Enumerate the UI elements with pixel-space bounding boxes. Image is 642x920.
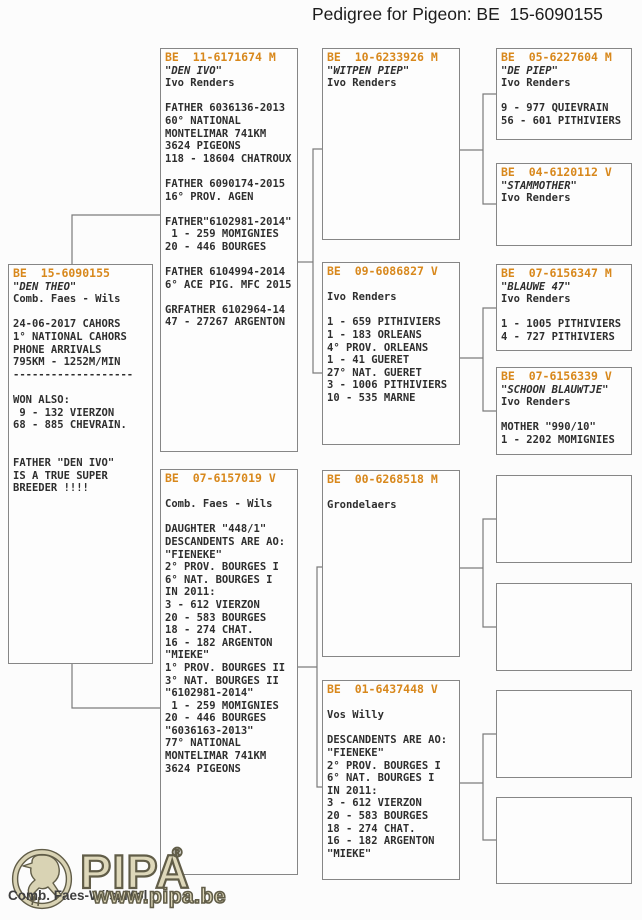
pedigree-box-granddam-paternal: BE 09-6086827 V Ivo Renders 1 - 659 PITH…	[322, 262, 460, 445]
ring-number: BE 00-6268518 M	[327, 473, 455, 486]
pedigree-box-dam: BE 07-6157019 V Comb. Faes - Wils DAUGHT…	[160, 469, 298, 875]
pigeon-details: Ivo Renders 9 - 977 QUIEVRAIN 56 - 601 P…	[501, 77, 627, 127]
pedigree-box-grandsire-maternal: BE 00-6268518 M Grondelaers	[322, 470, 460, 657]
pedigree-page: Pedigree for Pigeon: BE 15-6090155 BE 15…	[0, 0, 642, 920]
ring-number: BE 07-6157019 V	[165, 472, 293, 485]
pigeon-icon	[10, 846, 74, 916]
pigeon-details: Vos Willy DESCANDENTS ARE AO: "FIENEKE" …	[327, 709, 455, 860]
pigeon-nickname: "DE PIEP"	[501, 65, 627, 78]
pedigree-box-empty-2	[496, 583, 632, 671]
pigeon-nickname: "BLAUWE 47"	[501, 281, 627, 294]
ring-number: BE 11-6171674 M	[165, 51, 293, 64]
pigeon-nickname: "DEN IVO"	[165, 65, 293, 78]
pigeon-details: Ivo Renders FATHER 6036136-2013 60° NATI…	[165, 77, 293, 329]
pigeon-details: Comb. Faes - Wils 24-06-2017 CAHORS 1° N…	[13, 293, 148, 495]
pigeon-details: Ivo Renders MOTHER "990/10" 1 - 2202 MOM…	[501, 396, 627, 446]
ring-number: BE 01-6437448 V	[327, 683, 455, 696]
pedigree-box-greatgrandparent-2: BE 04-6120112 V "STAMMOTHER" Ivo Renders	[496, 163, 632, 246]
pigeon-nickname	[327, 279, 455, 292]
pigeon-details: Ivo Renders	[501, 192, 627, 205]
pigeon-details: Grondelaers	[327, 499, 455, 512]
pigeon-nickname: "DEN THEO"	[13, 281, 148, 294]
pipa-logo: Comb. Faes-Wils, Mol PIPA ® www.pipa.be	[0, 830, 260, 920]
pedigree-box-empty-1	[496, 475, 632, 563]
pedigree-box-greatgrandparent-4: BE 07-6156339 V "SCHOON BLAUWTJE" Ivo Re…	[496, 367, 632, 455]
pedigree-box-empty-4	[496, 797, 632, 884]
pigeon-nickname	[327, 487, 455, 500]
ring-number: BE 05-6227604 M	[501, 51, 627, 64]
ring-number: BE 15-6090155	[13, 267, 148, 280]
pigeon-details: Comb. Faes - Wils DAUGHTER "448/1" DESCA…	[165, 498, 293, 775]
pigeon-nickname	[327, 697, 455, 710]
pigeon-details: Ivo Renders 1 - 1005 PITHIVIERS 4 - 727 …	[501, 293, 627, 343]
pigeon-nickname: "SCHOON BLAUWTJE"	[501, 384, 627, 397]
pedigree-box-sire: BE 11-6171674 M "DEN IVO" Ivo Renders FA…	[160, 48, 298, 452]
ring-number: BE 07-6156339 V	[501, 370, 627, 383]
ring-number: BE 10-6233926 M	[327, 51, 455, 64]
registered-mark: ®	[172, 844, 182, 860]
pigeon-details: Ivo Renders 1 - 659 PITHIVIERS 1 - 183 O…	[327, 291, 455, 404]
pedigree-box-grandsire-paternal: BE 10-6233926 M "WITPEN PIEP" Ivo Render…	[322, 48, 460, 240]
pedigree-box-granddam-maternal: BE 01-6437448 V Vos Willy DESCANDENTS AR…	[322, 680, 460, 880]
pedigree-box-greatgrandparent-3: BE 07-6156347 M "BLAUWE 47" Ivo Renders …	[496, 264, 632, 351]
pipa-url: www.pipa.be	[93, 885, 226, 909]
pedigree-box-greatgrandparent-1: BE 05-6227604 M "DE PIEP" Ivo Renders 9 …	[496, 48, 632, 140]
pedigree-box-empty-3	[496, 690, 632, 778]
pigeon-details: Ivo Renders	[327, 77, 455, 90]
ring-number: BE 07-6156347 M	[501, 267, 627, 280]
ring-number: BE 09-6086827 V	[327, 265, 455, 278]
pigeon-nickname: "WITPEN PIEP"	[327, 65, 455, 78]
pigeon-nickname: "STAMMOTHER"	[501, 180, 627, 193]
pedigree-box-subject: BE 15-6090155 "DEN THEO" Comb. Faes - Wi…	[8, 264, 153, 664]
pigeon-nickname	[165, 486, 293, 499]
ring-number: BE 04-6120112 V	[501, 166, 627, 179]
